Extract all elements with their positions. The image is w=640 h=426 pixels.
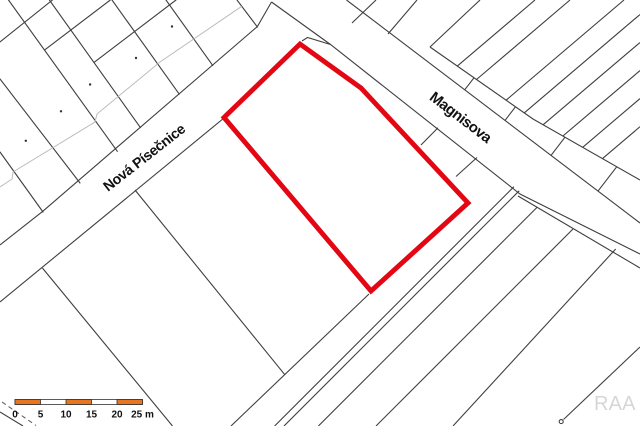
svg-text:RAA: RAA — [594, 393, 636, 415]
svg-text:5: 5 — [38, 410, 44, 421]
svg-text:20: 20 — [111, 410, 123, 421]
svg-text:0: 0 — [12, 410, 18, 421]
svg-text:10: 10 — [60, 410, 72, 421]
svg-text:25 m: 25 m — [131, 410, 154, 421]
svg-text:15: 15 — [86, 410, 98, 421]
